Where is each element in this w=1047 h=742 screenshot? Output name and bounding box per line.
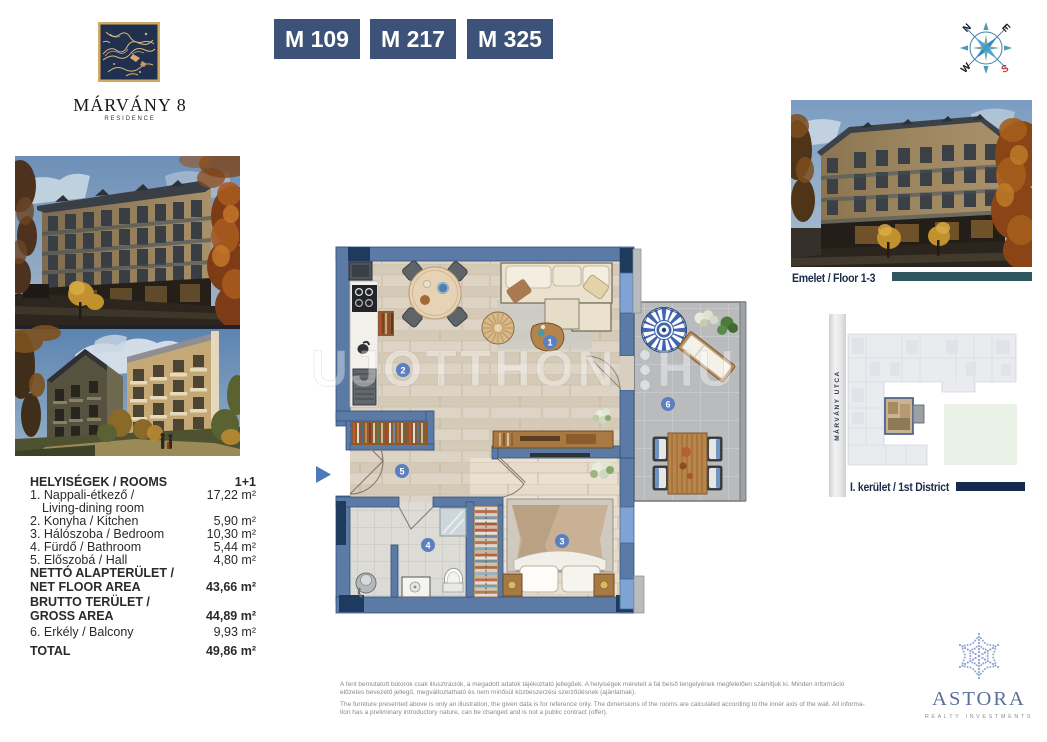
svg-text:S: S <box>1000 63 1011 76</box>
svg-text:3: 3 <box>559 537 564 547</box>
svg-text:N: N <box>961 22 974 35</box>
svg-text:4: 4 <box>425 541 430 551</box>
svg-text:6: 6 <box>665 400 670 410</box>
svg-text:5: 5 <box>399 467 404 477</box>
svg-text:HU: HU <box>657 340 737 397</box>
svg-text:UJOTTHON: UJOTTHON <box>311 340 617 397</box>
